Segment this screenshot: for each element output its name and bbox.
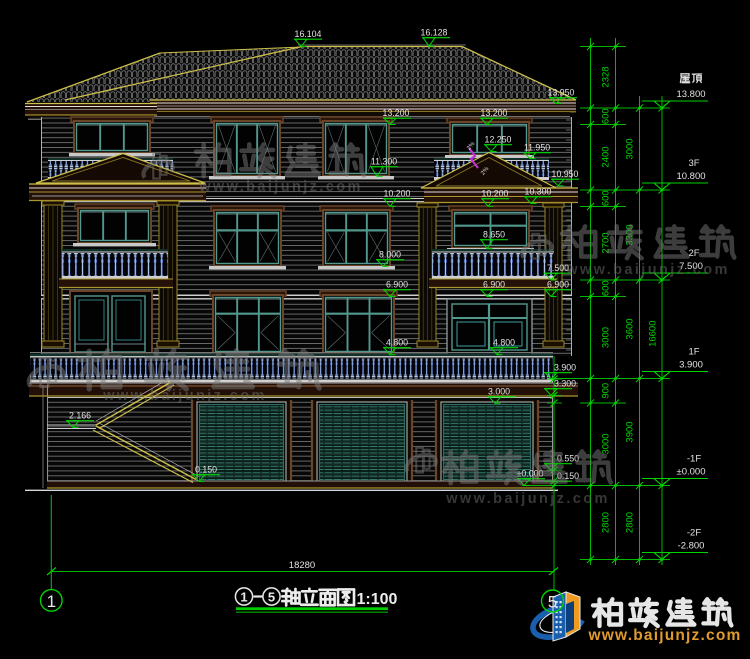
svg-text:3.900: 3.900 <box>554 363 576 373</box>
svg-text:600: 600 <box>601 190 612 206</box>
svg-text:3600: 3600 <box>625 318 636 339</box>
svg-text:www.baijunjz.com: www.baijunjz.com <box>102 388 267 404</box>
svg-text:10.200: 10.200 <box>384 189 411 199</box>
svg-text:3F: 3F <box>688 158 699 169</box>
svg-text:10.200: 10.200 <box>482 189 509 199</box>
svg-text:600: 600 <box>601 280 612 296</box>
svg-text:-2.800: -2.800 <box>678 541 705 552</box>
svg-text:10.300: 10.300 <box>525 187 552 197</box>
svg-text:www.baijunjz.com: www.baijunjz.com <box>588 627 742 644</box>
svg-text:3.300: 3.300 <box>554 379 576 389</box>
svg-text:3000: 3000 <box>601 433 612 454</box>
svg-text:3000: 3000 <box>625 138 636 159</box>
svg-text:3.900: 3.900 <box>679 360 703 371</box>
svg-text:1:100: 1:100 <box>357 591 398 608</box>
svg-text:600: 600 <box>601 108 612 124</box>
svg-text:5: 5 <box>268 590 275 605</box>
svg-text:2F: 2F <box>688 248 699 259</box>
svg-text:8.650: 8.650 <box>483 230 505 240</box>
svg-text:8.000: 8.000 <box>379 250 401 260</box>
svg-text:10.950: 10.950 <box>552 169 579 179</box>
svg-text:13.200: 13.200 <box>481 108 508 118</box>
svg-text:3.000: 3.000 <box>488 387 510 397</box>
svg-text:11.300: 11.300 <box>371 157 397 167</box>
svg-text:11.950: 11.950 <box>524 143 550 153</box>
svg-text:12.250: 12.250 <box>485 135 512 145</box>
svg-text:2800: 2800 <box>625 512 636 533</box>
svg-text:-1F: -1F <box>687 454 701 465</box>
svg-text:2.166: 2.166 <box>69 411 91 421</box>
svg-text:6.900: 6.900 <box>483 280 505 290</box>
svg-text:16.104: 16.104 <box>295 29 322 39</box>
svg-text:±0.000: ±0.000 <box>677 467 706 478</box>
svg-text:3000: 3000 <box>601 327 612 348</box>
svg-text:16600: 16600 <box>648 320 659 346</box>
svg-text:13.800: 13.800 <box>676 89 705 100</box>
svg-text:1: 1 <box>47 592 56 611</box>
svg-text:0.150: 0.150 <box>195 465 217 475</box>
svg-text:1F: 1F <box>688 347 699 358</box>
svg-text:www.baijunjz.com: www.baijunjz.com <box>565 262 730 278</box>
svg-text:16.128: 16.128 <box>421 28 448 38</box>
svg-text:6.900: 6.900 <box>547 280 569 290</box>
svg-text:2328: 2328 <box>601 66 612 87</box>
svg-text:6.900: 6.900 <box>386 280 408 290</box>
svg-text:4.800: 4.800 <box>386 338 408 348</box>
svg-text:18280: 18280 <box>289 560 315 571</box>
svg-text:-2F: -2F <box>687 528 701 539</box>
svg-text:13.950: 13.950 <box>548 88 575 98</box>
svg-text:5: 5 <box>548 593 557 612</box>
svg-text:2400: 2400 <box>601 146 612 167</box>
svg-text:www.baijunjz.com: www.baijunjz.com <box>198 179 363 195</box>
svg-text:13.200: 13.200 <box>383 108 410 118</box>
svg-text:www.baijunjz.com: www.baijunjz.com <box>445 491 610 507</box>
svg-text:900: 900 <box>601 383 612 399</box>
svg-text:4.800: 4.800 <box>493 338 515 348</box>
svg-text:3900: 3900 <box>625 421 636 442</box>
svg-text:1: 1 <box>240 590 247 605</box>
svg-text:2800: 2800 <box>601 512 612 533</box>
svg-text:10.800: 10.800 <box>676 171 705 182</box>
